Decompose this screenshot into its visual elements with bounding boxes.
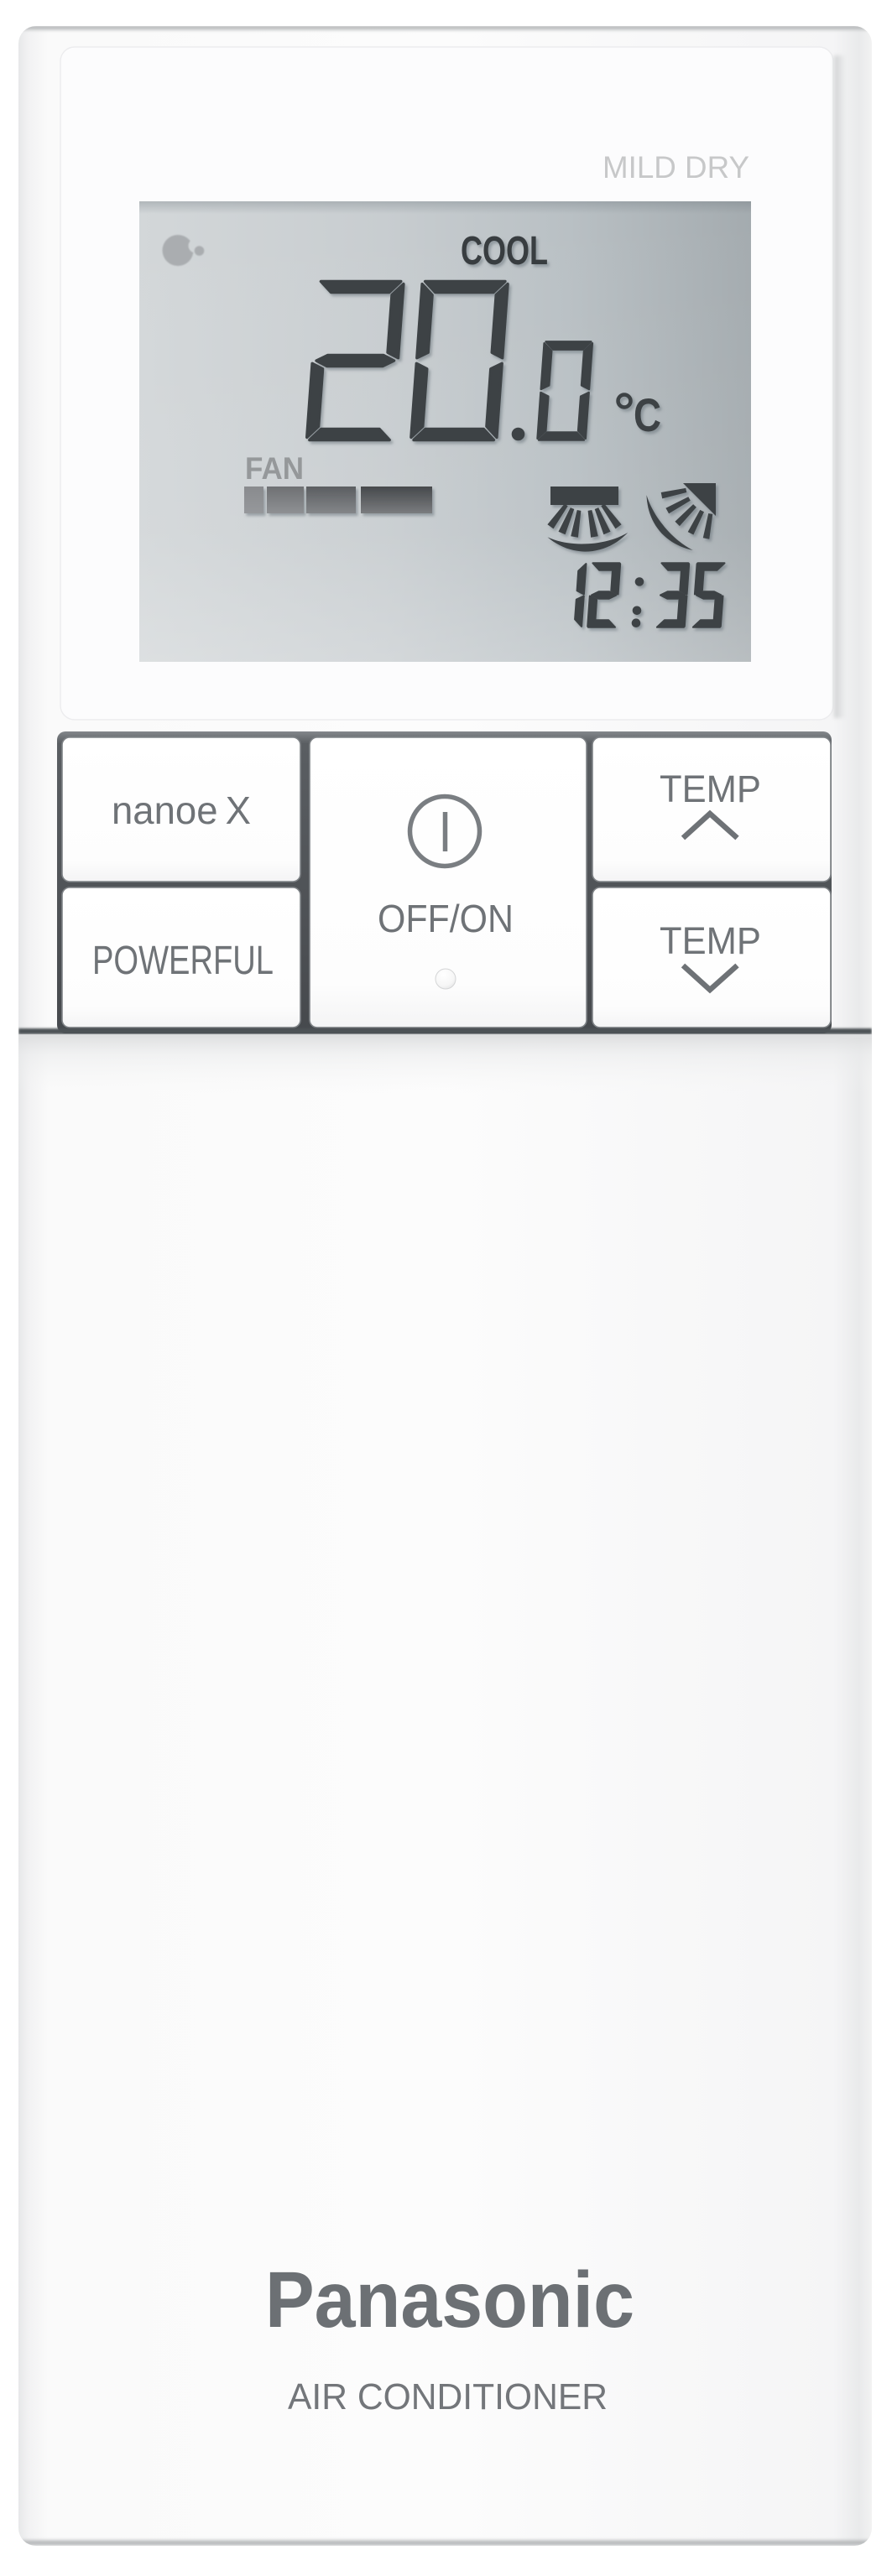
- svg-text:C: C: [634, 388, 661, 441]
- svg-text:POWERFUL: POWERFUL: [92, 939, 274, 983]
- svg-text:TEMP: TEMP: [660, 919, 761, 962]
- svg-text:TEMP: TEMP: [660, 768, 761, 810]
- svg-text:COOL: COOL: [461, 229, 548, 273]
- svg-text:OFF/ON: OFF/ON: [378, 897, 514, 940]
- svg-text:AIR CONDITIONER: AIR CONDITIONER: [288, 2376, 608, 2417]
- svg-text:MILD DRY: MILD DRY: [602, 150, 749, 185]
- svg-text:FAN: FAN: [245, 451, 304, 486]
- svg-text:nanoe X: nanoe X: [112, 788, 251, 832]
- svg-text:Panasonic: Panasonic: [265, 2256, 634, 2344]
